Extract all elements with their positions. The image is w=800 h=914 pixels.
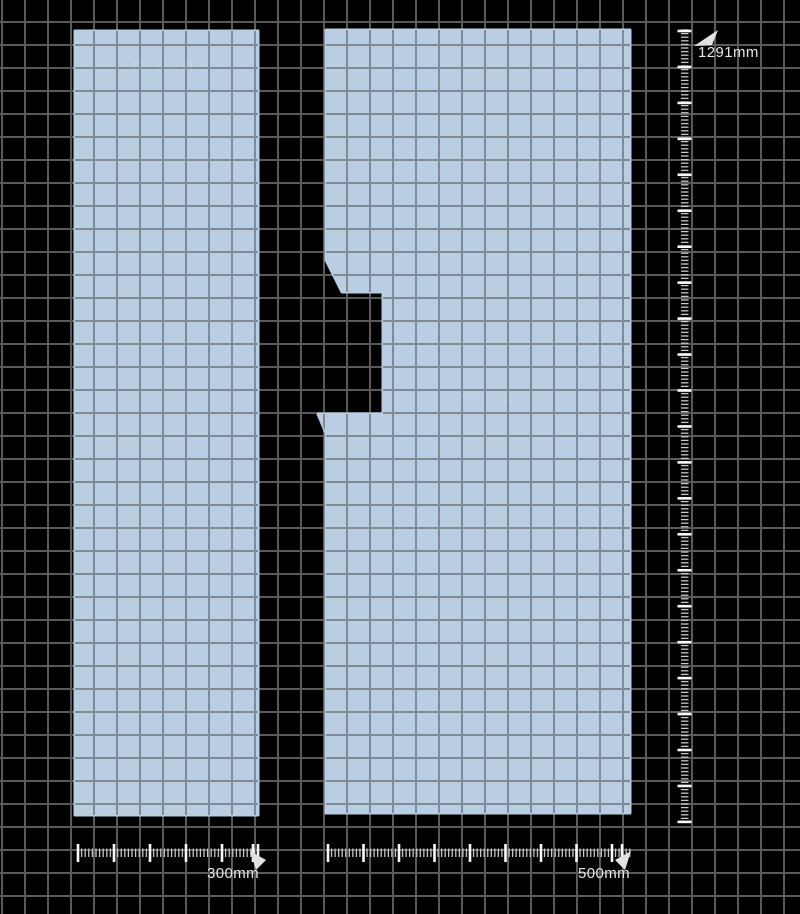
panel-left[interactable] (75, 31, 258, 815)
canvas-svg (0, 0, 800, 914)
panel-right[interactable] (318, 30, 630, 813)
panel-left-watermark: 300 x 1291 (131, 60, 195, 72)
pattern-canvas: 1291mm 300mm 500mm 300 x 1291 500 x 1291 (0, 0, 800, 914)
panel-right-grid (318, 30, 630, 813)
left-width-dimension-label: 300mm (189, 865, 259, 882)
height-dimension-label: 1291mm (698, 44, 759, 61)
panel-right-watermark: 500 x 1291 (460, 393, 524, 405)
right-width-dimension-label: 500mm (560, 865, 630, 882)
panel-left-grid (75, 31, 258, 815)
